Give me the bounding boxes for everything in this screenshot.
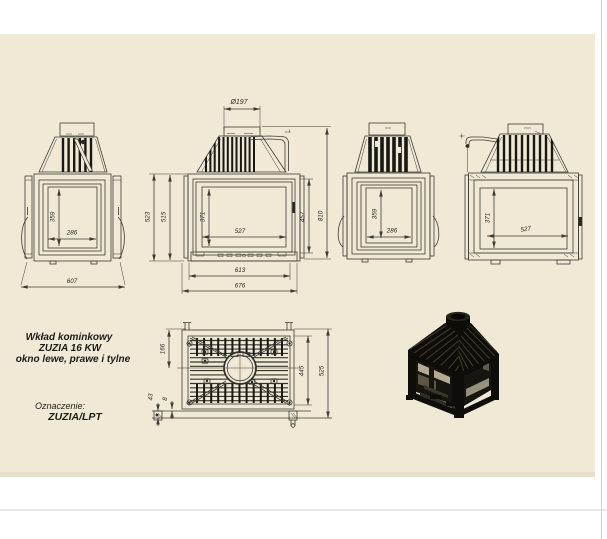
- svg-text:Ø197: Ø197: [229, 99, 248, 106]
- svg-text:359: 359: [372, 208, 379, 219]
- svg-text:515: 515: [161, 211, 168, 222]
- svg-text:371: 371: [485, 213, 492, 224]
- svg-text:ZUZIA/LPT: ZUZIA/LPT: [47, 411, 103, 423]
- svg-text:810: 810: [318, 210, 325, 221]
- svg-text:676: 676: [235, 283, 246, 290]
- svg-text:Oznaczenie:: Oznaczenie:: [35, 401, 86, 411]
- svg-text:525: 525: [319, 365, 326, 376]
- svg-text:ZUZIA 16 KW: ZUZIA 16 KW: [38, 343, 103, 354]
- svg-text:43: 43: [148, 393, 155, 401]
- svg-text:359: 359: [50, 211, 57, 222]
- svg-text:166: 166: [160, 343, 167, 354]
- svg-text:286: 286: [386, 228, 398, 235]
- svg-text:okno lewe, prawe i tylne: okno lewe, prawe i tylne: [16, 354, 131, 365]
- svg-text:613: 613: [235, 267, 246, 274]
- svg-text:286: 286: [66, 230, 78, 237]
- svg-text:Wkład kominkowy: Wkład kominkowy: [26, 332, 113, 343]
- svg-text:607: 607: [67, 278, 78, 285]
- svg-text:8: 8: [162, 397, 169, 401]
- svg-text:457: 457: [300, 211, 307, 222]
- svg-text:371: 371: [200, 212, 207, 223]
- svg-text:445: 445: [299, 365, 306, 376]
- svg-text:527: 527: [235, 228, 246, 235]
- svg-text:523: 523: [145, 211, 152, 222]
